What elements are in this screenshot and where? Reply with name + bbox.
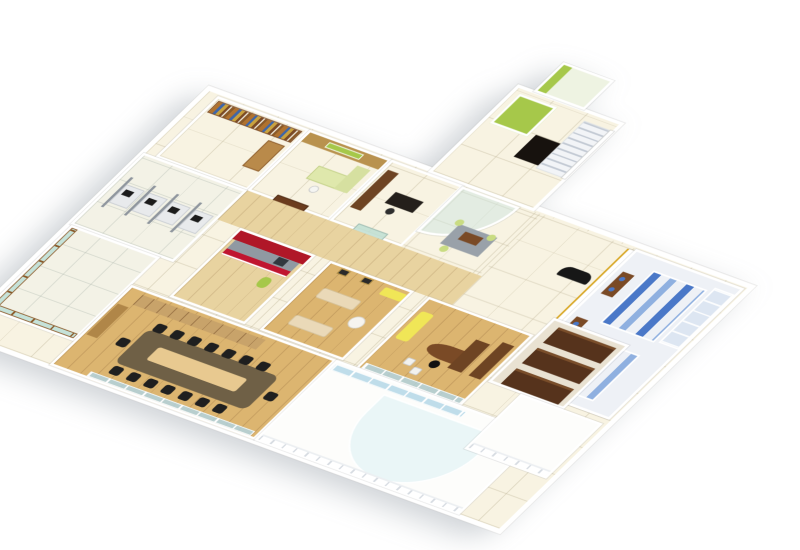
floor-plan-render bbox=[0, 0, 800, 550]
guest-chair bbox=[408, 366, 423, 375]
chair bbox=[108, 365, 126, 376]
chair bbox=[262, 391, 280, 402]
guest-chair bbox=[402, 357, 417, 366]
chair bbox=[383, 207, 396, 215]
glass-railing bbox=[0, 228, 78, 310]
chair bbox=[159, 384, 177, 395]
yellow-bench bbox=[379, 287, 408, 302]
cream-sofa bbox=[287, 314, 335, 337]
green-utility-room bbox=[489, 94, 557, 137]
round-table bbox=[344, 315, 369, 331]
visitor-chair bbox=[437, 245, 450, 253]
wall-art bbox=[337, 268, 351, 276]
water-jug bbox=[254, 276, 274, 289]
chair bbox=[125, 372, 143, 383]
green-accent-wall bbox=[538, 65, 573, 94]
chair bbox=[194, 397, 212, 408]
chair bbox=[211, 403, 229, 414]
cream-sofa bbox=[315, 287, 363, 310]
wall-art bbox=[360, 277, 374, 285]
office-chair bbox=[426, 359, 442, 369]
chair bbox=[306, 185, 321, 194]
black-sofa bbox=[556, 265, 595, 285]
chair bbox=[176, 390, 194, 401]
chair bbox=[142, 378, 160, 389]
